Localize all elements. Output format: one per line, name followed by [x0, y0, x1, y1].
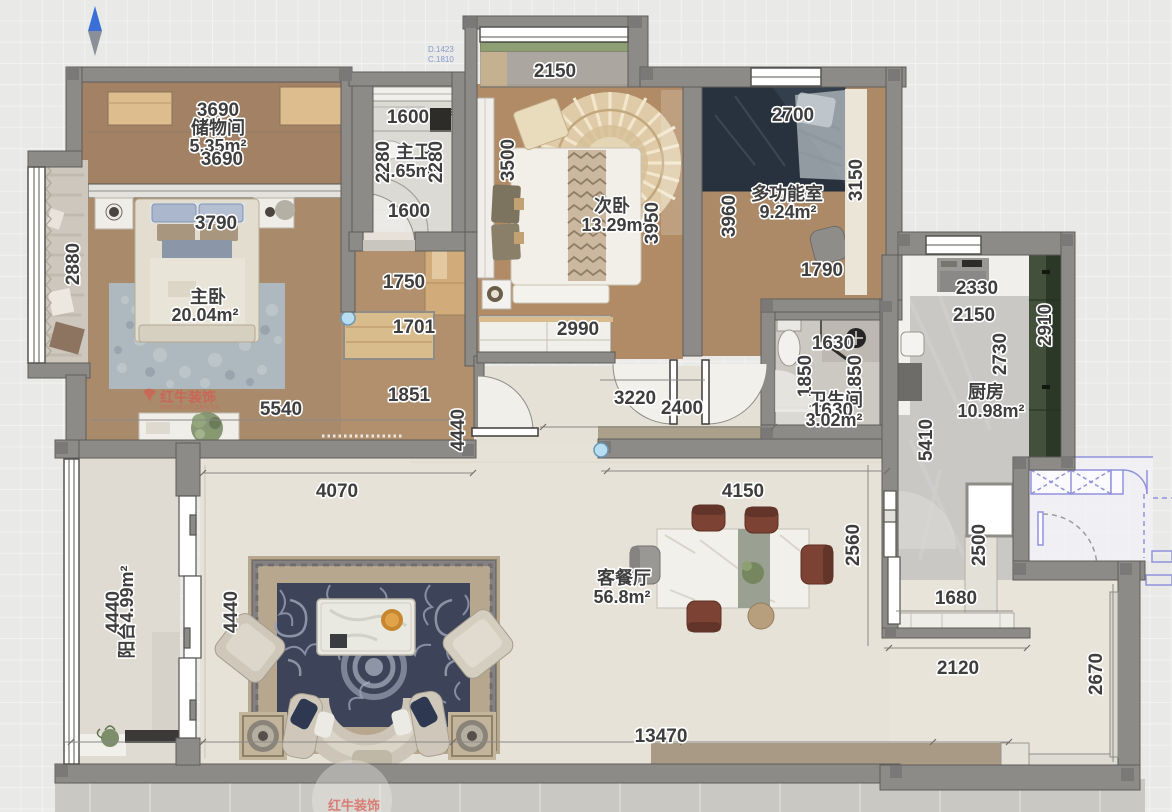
svg-text:13470: 13470	[635, 726, 688, 747]
svg-text:多功能室: 多功能室	[751, 183, 823, 204]
svg-text:2400: 2400	[661, 398, 703, 419]
svg-text:3690: 3690	[201, 149, 243, 170]
svg-text:2120: 2120	[937, 658, 979, 679]
svg-text:1851: 1851	[388, 385, 431, 406]
svg-text:2880: 2880	[63, 243, 84, 285]
svg-text:阳台4.99m²: 阳台4.99m²	[116, 565, 137, 658]
svg-text:C.1810: C.1810	[428, 55, 454, 64]
svg-text:4150: 4150	[722, 481, 764, 502]
svg-text:3.02m²: 3.02m²	[805, 410, 862, 430]
svg-text:1600: 1600	[387, 107, 429, 128]
svg-text:3790: 3790	[195, 213, 237, 234]
svg-text:3960: 3960	[719, 195, 740, 237]
svg-text:2990: 2990	[557, 319, 599, 340]
svg-text:2670: 2670	[1086, 653, 1107, 695]
svg-text:5410: 5410	[916, 419, 937, 461]
svg-text:1790: 1790	[801, 260, 843, 281]
svg-text:2700: 2700	[772, 105, 814, 126]
svg-text:10.98m²: 10.98m²	[957, 401, 1024, 421]
svg-text:D.1423: D.1423	[428, 45, 454, 54]
svg-text:HONG NIU DECORATION: HONG NIU DECORATION	[160, 405, 220, 411]
svg-text:2910: 2910	[1035, 304, 1056, 346]
svg-text:56.8m²: 56.8m²	[593, 587, 650, 607]
svg-text:2560: 2560	[843, 524, 864, 566]
svg-text:2150: 2150	[534, 61, 576, 82]
svg-text:4440: 4440	[448, 409, 469, 451]
svg-text:2280: 2280	[426, 141, 447, 183]
svg-text:1680: 1680	[935, 588, 977, 609]
svg-text:3500: 3500	[498, 139, 519, 181]
svg-text:2150: 2150	[953, 305, 995, 326]
svg-text:主卧: 主卧	[190, 286, 226, 307]
svg-text:客餐厅: 客餐厅	[597, 567, 651, 588]
svg-text:1600: 1600	[388, 201, 430, 222]
svg-text:4440: 4440	[221, 591, 242, 633]
svg-text:2730: 2730	[990, 333, 1011, 375]
svg-text:1750: 1750	[383, 272, 425, 293]
svg-text:2330: 2330	[956, 278, 998, 299]
svg-text:储物间: 储物间	[190, 117, 245, 138]
svg-text:9.24m²: 9.24m²	[759, 202, 816, 222]
svg-text:2500: 2500	[969, 524, 990, 566]
svg-text:4070: 4070	[316, 481, 358, 502]
svg-text:13.29m²: 13.29m²	[581, 215, 648, 235]
svg-text:5540: 5540	[260, 399, 302, 420]
svg-text:20.04m²: 20.04m²	[171, 305, 238, 325]
svg-text:1701: 1701	[393, 317, 436, 338]
svg-text:1630: 1630	[812, 333, 854, 354]
svg-text:2280: 2280	[373, 141, 394, 183]
svg-text:次卧: 次卧	[594, 195, 630, 216]
svg-text:厨房: 厨房	[968, 381, 1004, 402]
svg-text:红牛装饰: 红牛装饰	[160, 389, 216, 405]
svg-text:3150: 3150	[846, 159, 867, 201]
svg-text:3950: 3950	[642, 202, 663, 244]
svg-text:3220: 3220	[614, 388, 656, 409]
svg-text:红牛装饰: 红牛装饰	[328, 798, 380, 812]
